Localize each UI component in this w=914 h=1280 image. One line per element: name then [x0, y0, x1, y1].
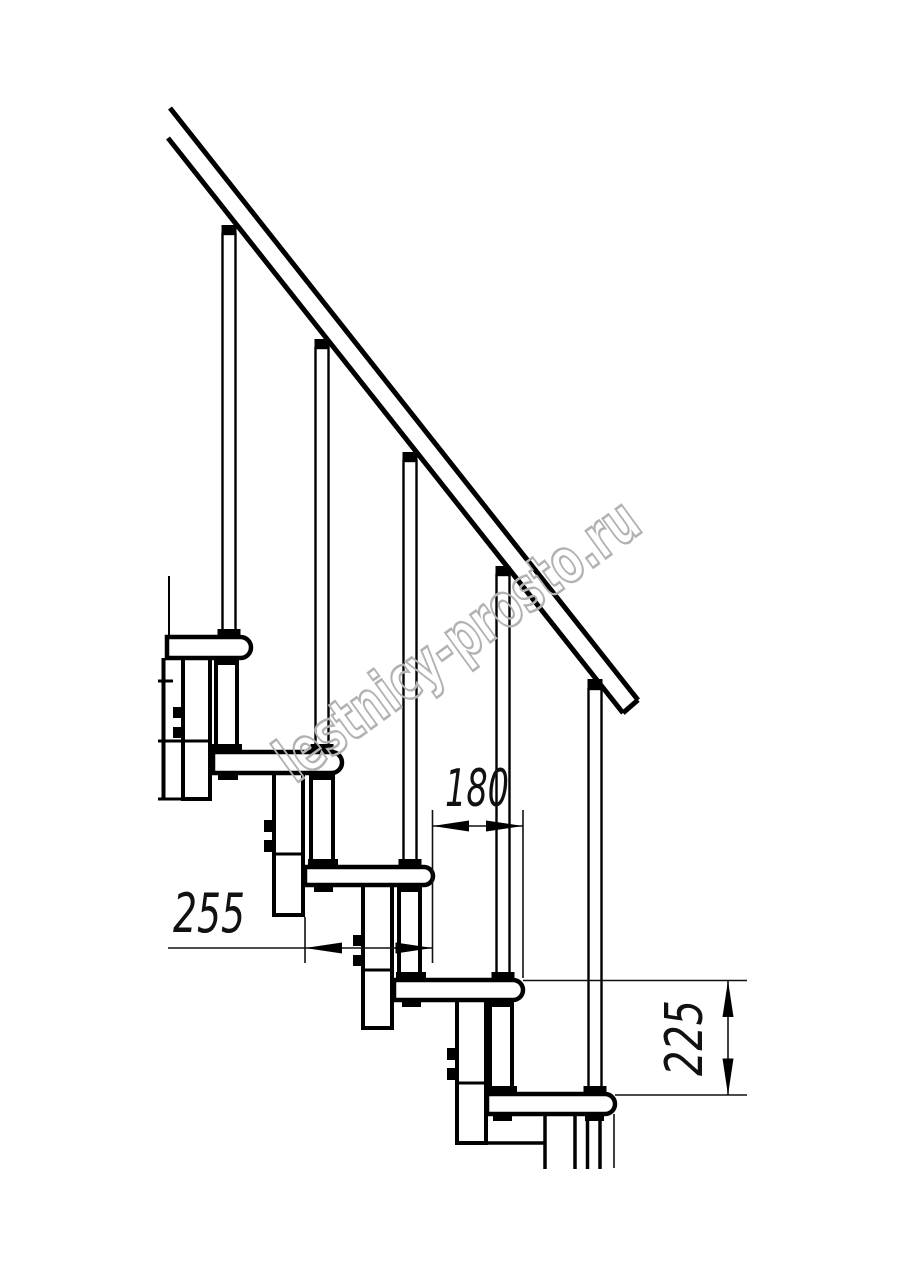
- support-column-4: [490, 1000, 512, 1094]
- support-post-d: [457, 1000, 486, 1143]
- nut-under-tread-a: [217, 657, 236, 665]
- baluster-1-rod: [223, 234, 236, 637]
- flange-on-tread-d: [396, 972, 426, 980]
- bolt-under-tread-b: [218, 772, 238, 780]
- staircase-drawing: 180 255 225 lestnicy-prosto.ru: [0, 0, 914, 1280]
- dim-225-label: 225: [655, 1000, 715, 1076]
- baluster-1-cap: [222, 225, 237, 235]
- tread-d: [394, 980, 523, 1000]
- dimension-225: 225: [523, 981, 747, 1096]
- support-post-b: [274, 773, 303, 915]
- support-column-3: [399, 885, 420, 980]
- support-column-1: [216, 658, 237, 752]
- tread-a: [167, 637, 251, 658]
- dim-225-arrow-up: [723, 981, 734, 1018]
- tread-c: [305, 867, 433, 885]
- bolt-under-tread-c: [314, 885, 333, 892]
- tread-e: [487, 1094, 615, 1114]
- nut-under-tread-c: [401, 884, 420, 892]
- technical-drawing-canvas: 180 255 225 lestnicy-prosto.ru: [0, 0, 914, 1280]
- clamp-post-b-lower: [264, 840, 274, 852]
- baluster-5: [584, 679, 607, 1094]
- clamp-post-b-upper: [264, 820, 274, 832]
- baluster-3-base-collar: [399, 859, 422, 867]
- dim-255-label: 255: [173, 882, 245, 945]
- bolt-under-tread-e: [493, 1114, 512, 1121]
- clamp-post-c-lower: [353, 955, 363, 966]
- nut-under-tread-e: [585, 1113, 604, 1121]
- clamp-post-d-lower: [447, 1068, 457, 1080]
- clamp-post-a-upper: [173, 707, 183, 718]
- nut-under-tread-d: [492, 999, 511, 1007]
- clamp-post-a-lower: [173, 727, 183, 738]
- clamp-post-d-upper: [447, 1048, 457, 1060]
- dim-255-arrow-left: [305, 943, 342, 954]
- bolt-under-tread-d: [402, 1000, 421, 1007]
- baluster-1-base-collar: [218, 629, 241, 637]
- flange-on-tread-b: [212, 744, 242, 752]
- handrail-end-cap: [623, 700, 638, 713]
- dim-180-arrow-left: [433, 821, 470, 832]
- clamp-post-c-upper: [353, 935, 363, 946]
- baluster-4-base-collar: [492, 972, 515, 980]
- dim-225-arrow-down: [723, 1059, 734, 1096]
- support-post-a: [183, 658, 210, 799]
- flange-on-tread-c: [308, 859, 338, 867]
- baluster-1: [218, 225, 241, 637]
- support-post-c: [363, 885, 392, 1028]
- baluster-5-rod: [589, 689, 602, 1094]
- dim-180-label: 180: [445, 759, 509, 819]
- baluster-5-base-collar: [584, 1086, 607, 1094]
- cut-module-remnant: [158, 576, 183, 799]
- flange-on-tread-e: [487, 1086, 517, 1094]
